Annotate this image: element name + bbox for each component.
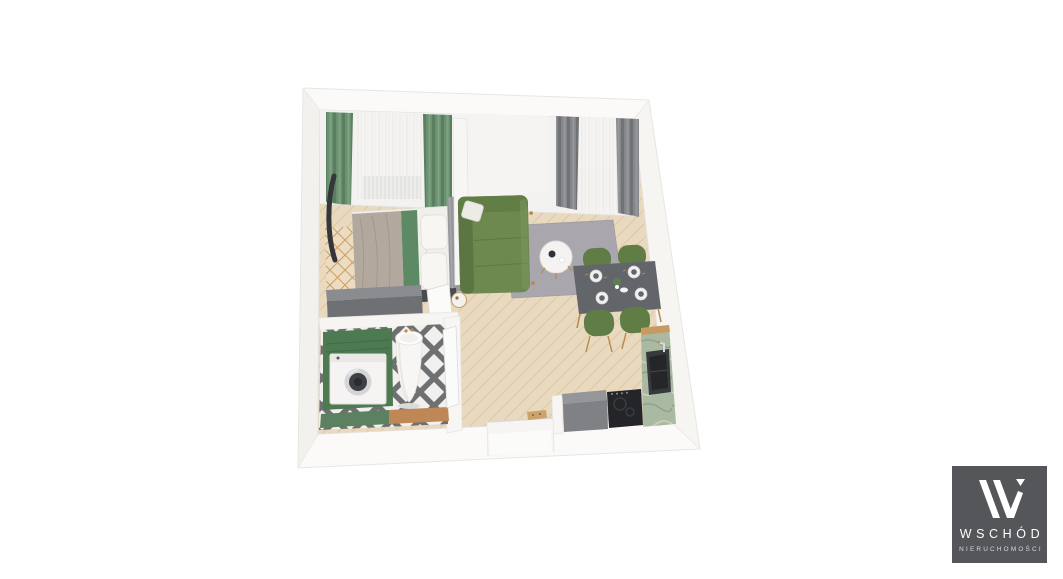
bed-pillow-bottom	[420, 253, 447, 290]
washing-machine-cabinet	[323, 328, 393, 410]
bed-accent-stripe	[401, 210, 420, 297]
floorplan-3d-render	[0, 0, 1063, 579]
bedroom-radiator	[362, 176, 421, 199]
bed-pillow-top	[420, 215, 447, 250]
bedside-table	[452, 293, 467, 308]
logo-graphic: WSCHÓD NIERUCHOMOŚCI	[952, 466, 1047, 563]
dining-chair-bottom-left	[583, 309, 614, 337]
logo-subtitle-text: NIERUCHOMOŚCI	[959, 544, 1043, 553]
vase-icon	[549, 251, 556, 258]
brand-logo: WSCHÓD NIERUCHOMOŚCI	[952, 466, 1047, 563]
page-background: WSCHÓD NIERUCHOMOŚCI	[0, 0, 1063, 579]
west-wall-face	[298, 88, 320, 468]
kitchen-cabinet-gray-front	[563, 400, 608, 432]
living-curtain-right	[616, 118, 639, 217]
sofa	[458, 195, 535, 294]
faucet-icon	[404, 329, 407, 332]
table-plant-icon	[613, 278, 621, 286]
living-curtain-left	[556, 116, 579, 210]
logo-brand-text: WSCHÓD	[960, 526, 1045, 541]
bathroom	[319, 324, 459, 430]
